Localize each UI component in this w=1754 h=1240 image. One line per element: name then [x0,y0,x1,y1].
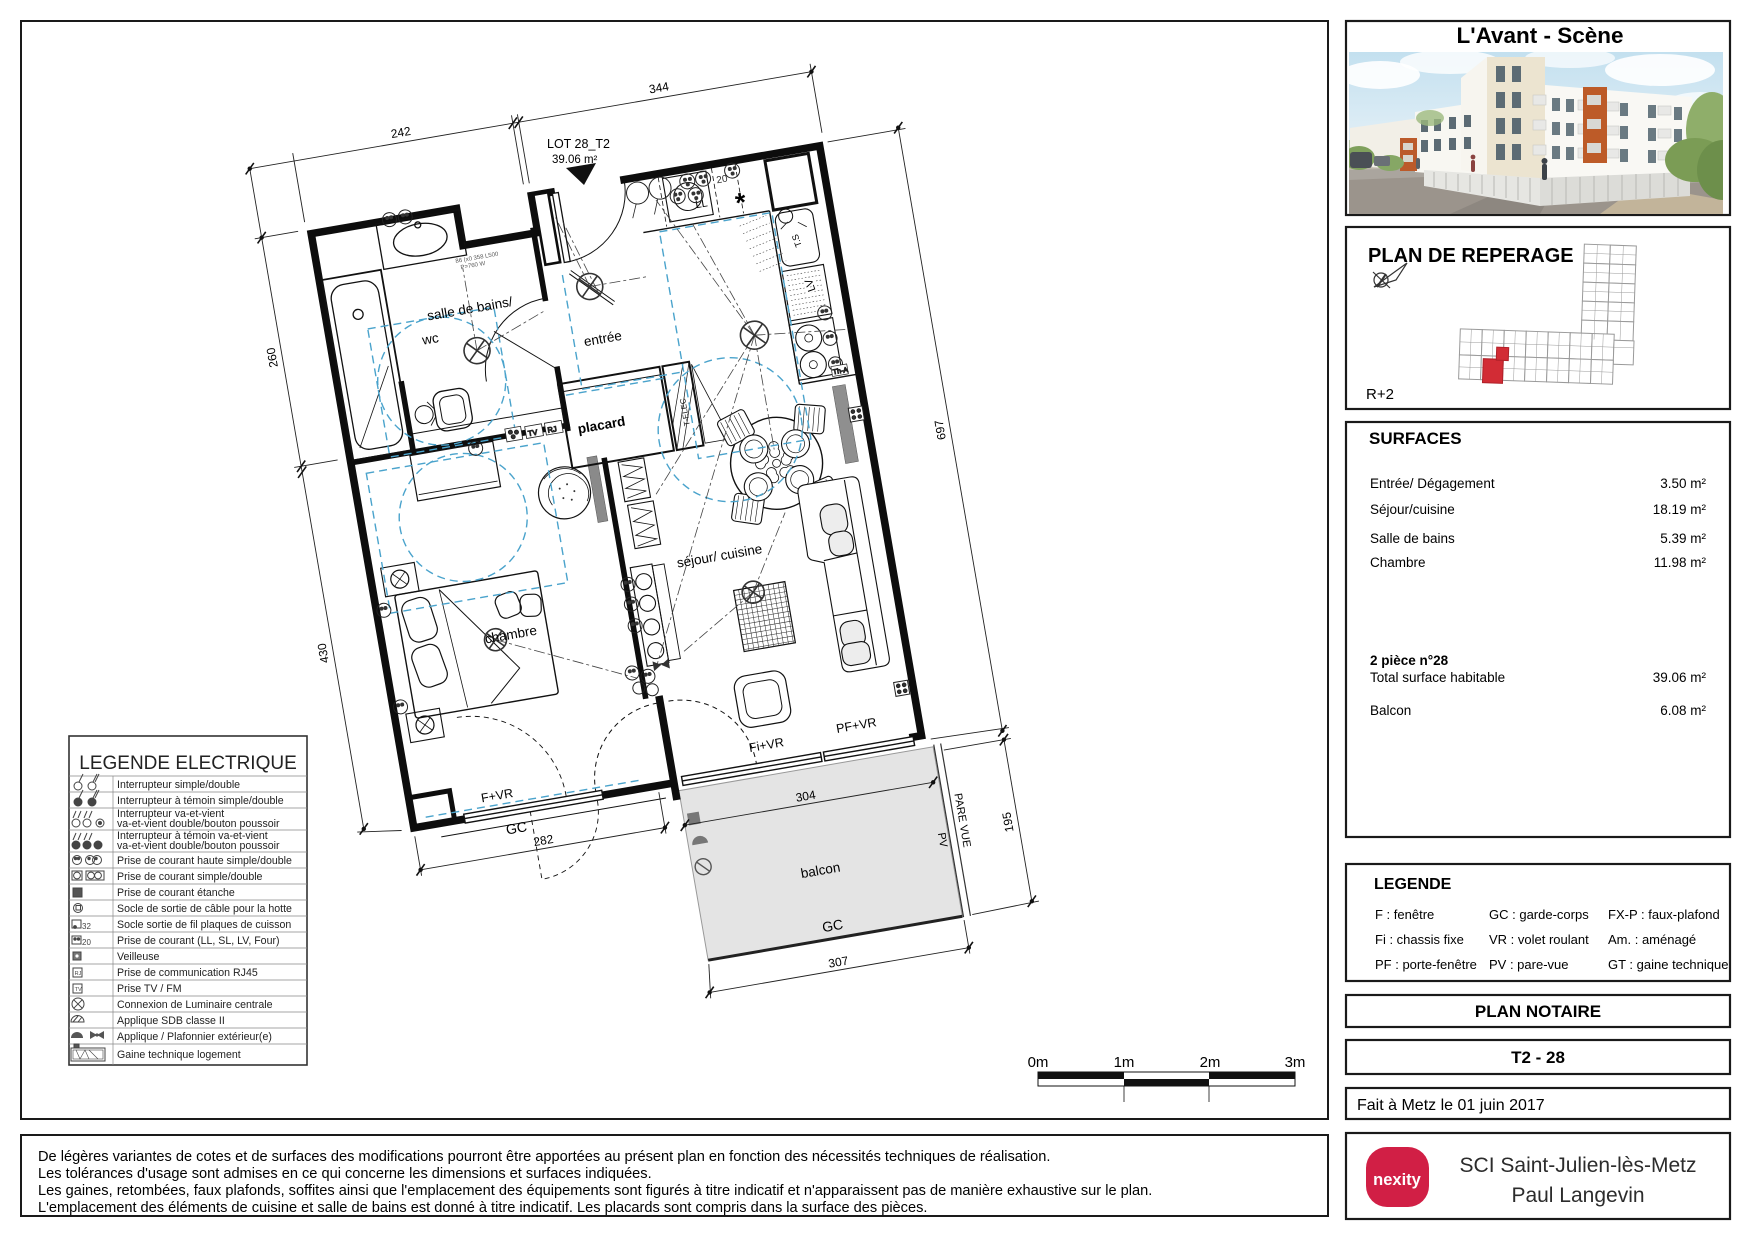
svg-text:Interrupteur à témoin simple/d: Interrupteur à témoin simple/double [117,795,284,807]
svg-text:Fait à Metz le 01 juin 2017: Fait à Metz le 01 juin 2017 [1357,1097,1545,1114]
svg-text:3m: 3m [1285,1054,1306,1071]
svg-text:Prise de courant (LL, SL, LV,: Prise de courant (LL, SL, LV, Four) [117,935,280,947]
svg-text:Total surface habitable: Total surface habitable [1370,670,1505,685]
svg-text:32: 32 [82,922,91,931]
svg-text:LOT 28_T2: LOT 28_T2 [547,137,610,151]
svg-text:20: 20 [82,938,91,947]
svg-text:GC : garde-corps: GC : garde-corps [1489,907,1589,922]
svg-text:LEGENDE: LEGENDE [1374,876,1452,893]
svg-text:TV: TV [527,428,538,439]
svg-text:va-et-vient double/bouton pous: va-et-vient double/bouton poussoir [117,840,280,852]
svg-text:5.39 m²: 5.39 m² [1660,531,1706,546]
svg-text:nexity: nexity [1373,1171,1422,1189]
svg-text:Applique SDB classe II: Applique SDB classe II [117,1015,225,1027]
svg-text:PF : porte-fenêtre: PF : porte-fenêtre [1375,957,1477,972]
svg-text:Séjour/cuisine: Séjour/cuisine [1370,502,1455,517]
svg-text:T2 - 28: T2 - 28 [1511,1048,1565,1067]
svg-text:LEGENDE ELECTRIQUE: LEGENDE ELECTRIQUE [79,753,297,774]
svg-text:0m: 0m [1028,1054,1049,1071]
svg-text:Prise de courant simple/double: Prise de courant simple/double [117,871,263,883]
svg-text:Am. : aménagé: Am. : aménagé [1608,932,1696,947]
svg-text:Prise TV / FM: Prise TV / FM [117,983,182,995]
svg-text:11.98 m²: 11.98 m² [1654,555,1707,570]
svg-text:Entrée/ Dégagement: Entrée/ Dégagement [1370,476,1495,491]
svg-text:RJ: RJ [547,424,558,434]
svg-text:PLAN DE REPERAGE: PLAN DE REPERAGE [1368,245,1574,267]
svg-text:Prise de courant haute simple/: Prise de courant haute simple/double [117,855,292,867]
svg-text:2m: 2m [1200,1054,1221,1071]
svg-text:6.08 m²: 6.08 m² [1660,703,1706,718]
svg-text:R+2: R+2 [1366,386,1394,403]
svg-text:VR : volet roulant: VR : volet roulant [1489,932,1589,947]
svg-text:FX-P : faux-plafond: FX-P : faux-plafond [1608,907,1720,922]
svg-text:Chambre: Chambre [1370,555,1426,570]
svg-text:GT : gaine technique: GT : gaine technique [1608,957,1728,972]
svg-text:SURFACES: SURFACES [1369,429,1462,448]
svg-text:RJ: RJ [75,971,82,977]
svg-text:Salle de bains: Salle de bains [1370,531,1455,546]
svg-text:Les tolérances d'usage sont ad: Les tolérances d'usage sont admises en c… [38,1166,652,1182]
svg-text:Les gaines, retombées, faux pl: Les gaines, retombées, faux plafonds, so… [38,1183,1152,1199]
svg-text:SCI Saint-Julien-lès-Metz: SCI Saint-Julien-lès-Metz [1460,1154,1697,1177]
svg-text:18.19 m²: 18.19 m² [1653,502,1707,517]
svg-text:Interrupteur simple/double: Interrupteur simple/double [117,779,240,791]
svg-text:Veilleuse: Veilleuse [117,951,160,963]
svg-text:2 pièce n°28: 2 pièce n°28 [1370,653,1449,668]
svg-text:PLAN NOTAIRE: PLAN NOTAIRE [1475,1002,1601,1021]
svg-text:L'emplacement des éléments de: L'emplacement des éléments de cuisine et… [38,1200,927,1216]
svg-text:PV : pare-vue: PV : pare-vue [1489,957,1569,972]
svg-text:va-et-vient double/bouton pous: va-et-vient double/bouton poussoir [117,818,280,830]
svg-text:Applique / Plafonnier extérieu: Applique / Plafonnier extérieur(e) [117,1031,272,1043]
svg-text:wc: wc [420,330,440,348]
svg-text:Prise de courant étanche: Prise de courant étanche [117,887,235,899]
svg-text:TV: TV [75,987,82,993]
svg-text:L'Avant - Scène: L'Avant - Scène [1456,23,1623,48]
svg-text:Socle sortie de fil plaques de: Socle sortie de fil plaques de cuisson [117,919,291,931]
svg-text:Connexion de Luminaire central: Connexion de Luminaire centrale [117,999,273,1011]
svg-text:De légères variantes de cotes: De légères variantes de cotes et de surf… [38,1149,1050,1165]
svg-text:Balcon: Balcon [1370,703,1411,718]
svg-text:39.06 m²: 39.06 m² [1653,670,1707,685]
svg-text:Gaine technique logement: Gaine technique logement [117,1049,241,1061]
svg-text:3.50 m²: 3.50 m² [1660,476,1706,491]
svg-text:F : fenêtre: F : fenêtre [1375,907,1434,922]
svg-text:1m: 1m [1114,1054,1135,1071]
svg-text:Paul Langevin: Paul Langevin [1511,1184,1644,1207]
svg-text:Socle de sortie de câble pour: Socle de sortie de câble pour la hotte [117,903,292,915]
svg-text:Fi : chassis fixe: Fi : chassis fixe [1375,932,1464,947]
svg-text:Prise de communication RJ45: Prise de communication RJ45 [117,967,258,979]
